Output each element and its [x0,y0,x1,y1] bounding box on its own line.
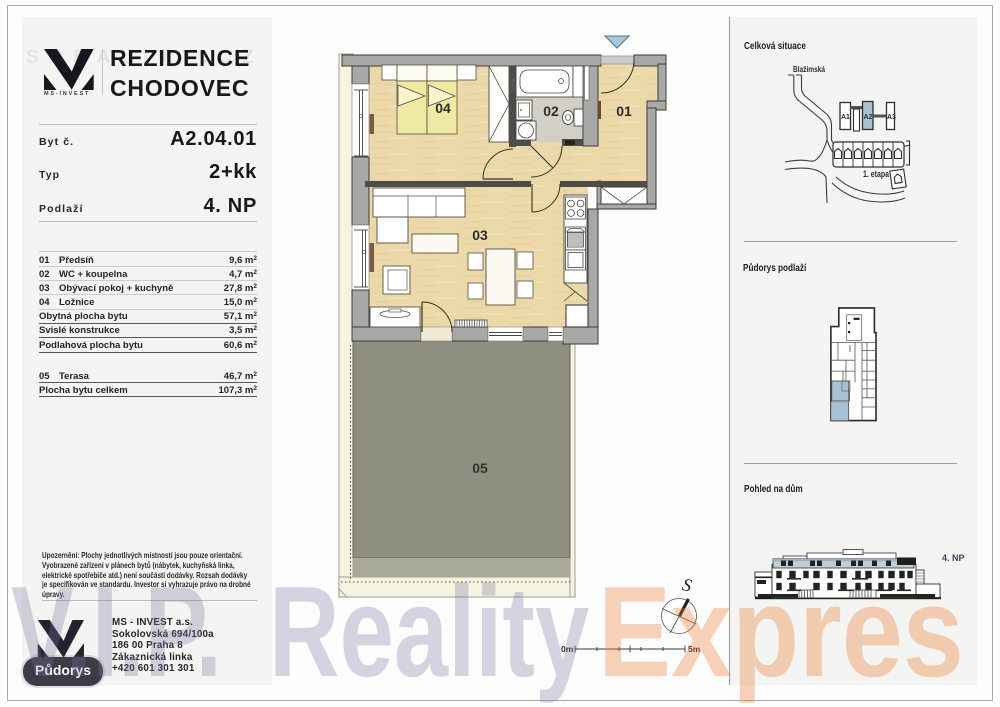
svg-text:A1: A1 [841,114,850,121]
svg-text:05: 05 [472,460,488,476]
svg-text:02: 02 [543,103,559,119]
svg-text:04: 04 [435,100,451,116]
svg-text:01: 01 [616,103,632,119]
svg-text:03: 03 [472,227,488,243]
svg-text:A3: A3 [887,114,896,121]
svg-text:Blažimská: Blažimská [793,64,825,74]
svg-text:A2: A2 [864,114,873,121]
svg-text:1. etapa: 1. etapa [863,169,890,179]
